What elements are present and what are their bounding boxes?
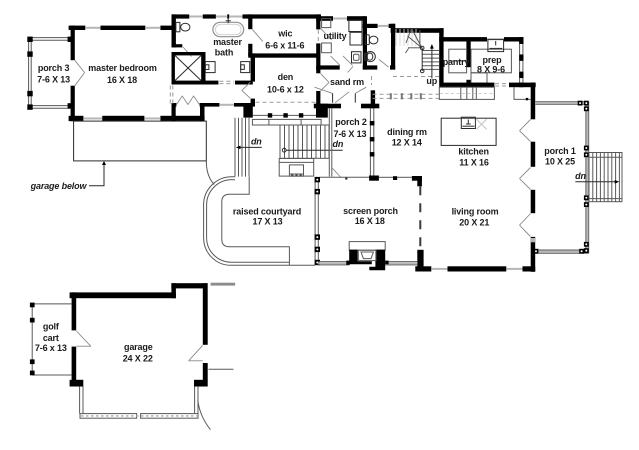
svg-text:dn: dn [575, 171, 586, 181]
svg-text:dining rm: dining rm [387, 127, 427, 137]
svg-text:golf: golf [43, 321, 60, 331]
svg-text:dn: dn [333, 139, 344, 149]
svg-text:raised courtyard: raised courtyard [233, 207, 301, 217]
svg-text:bath: bath [215, 48, 233, 58]
svg-text:11 X 16: 11 X 16 [459, 158, 489, 168]
svg-text:7-6 X 13: 7-6 X 13 [333, 129, 366, 139]
svg-text:10 X 25: 10 X 25 [545, 157, 575, 167]
svg-text:12 X 14: 12 X 14 [392, 138, 422, 148]
svg-text:17 X 13: 17 X 13 [253, 217, 283, 227]
svg-text:master: master [213, 37, 242, 47]
svg-text:24 X 22: 24 X 22 [123, 354, 153, 364]
svg-text:living room: living room [452, 207, 499, 217]
svg-text:up: up [426, 76, 437, 86]
svg-text:garage below: garage below [30, 181, 88, 191]
svg-text:porch 2: porch 2 [335, 117, 367, 127]
svg-text:7-6 x 13: 7-6 x 13 [35, 343, 67, 353]
svg-text:cart: cart [43, 333, 59, 343]
svg-text:den: den [278, 72, 294, 82]
svg-text:garage: garage [124, 342, 153, 352]
svg-text:7-6 X 13: 7-6 X 13 [37, 74, 70, 84]
svg-text:10-6 x 12: 10-6 x 12 [267, 85, 304, 95]
svg-text:utility: utility [324, 31, 347, 41]
svg-text:master bedroom: master bedroom [88, 63, 157, 73]
svg-text:dn: dn [251, 137, 262, 147]
svg-text:screen porch: screen porch [343, 206, 398, 216]
svg-text:porch 1: porch 1 [544, 146, 576, 156]
svg-text:6-6 x 11-6: 6-6 x 11-6 [265, 41, 304, 51]
svg-text:kitchen: kitchen [458, 147, 488, 157]
svg-text:16 X 18: 16 X 18 [107, 75, 137, 85]
svg-text:porch 3: porch 3 [38, 63, 70, 73]
svg-text:pantry: pantry [443, 57, 470, 67]
svg-text:8 X 9-6: 8 X 9-6 [477, 65, 505, 75]
svg-text:20 X 21: 20 X 21 [459, 218, 489, 228]
svg-text:wic: wic [277, 29, 292, 39]
svg-text:16 X 18: 16 X 18 [355, 216, 385, 226]
svg-text:sand rm: sand rm [330, 77, 364, 87]
